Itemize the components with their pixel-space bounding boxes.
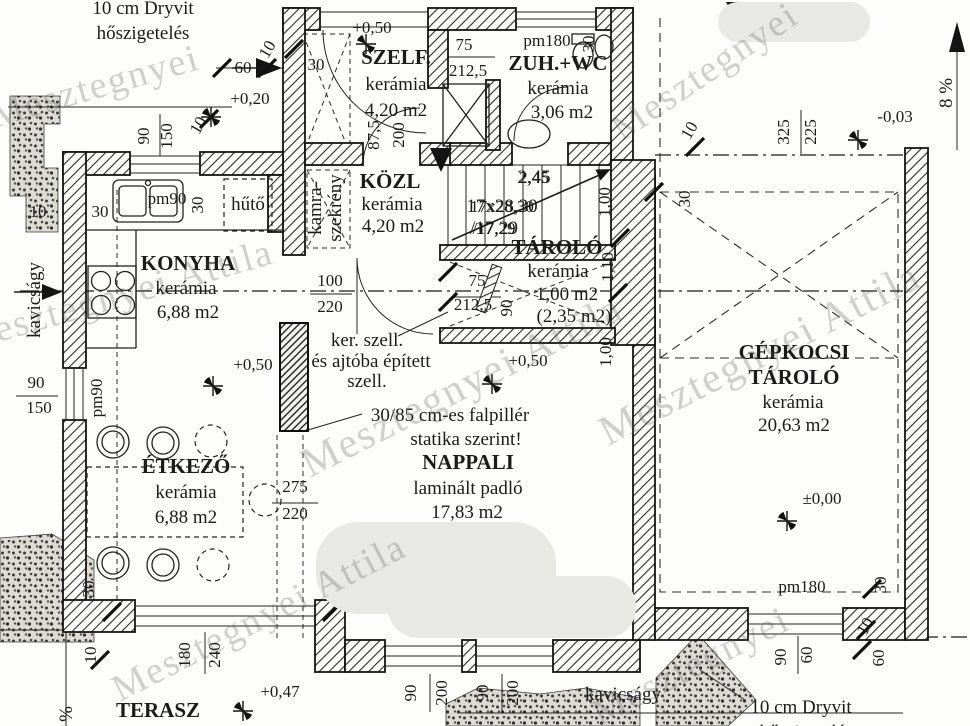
room-area-konyha: 6,88 m2	[157, 302, 219, 323]
room-area-etkezo: 6,88 m2	[155, 507, 217, 528]
room-area-szelf: 4,20 m2	[365, 100, 427, 121]
dimension-label: 212,5	[454, 295, 492, 314]
pantry-label-1: kamra-	[305, 181, 326, 235]
dimension-label: 60	[235, 58, 252, 77]
dimension-label: 60	[869, 650, 888, 667]
dimension-label: 90	[473, 685, 492, 702]
dimension-label: -0,03	[877, 107, 912, 126]
vent-note-2: és ajtóba épített	[311, 351, 431, 372]
vent-note-3: szell.	[347, 371, 387, 392]
shower-tray-icon	[443, 84, 489, 146]
insulation-note-bottom-1: 10 cm Dryvit	[750, 697, 852, 718]
room-area-kozl: 4,20 m2	[362, 216, 424, 237]
dimension-label: 90	[401, 685, 420, 702]
dimension-label: pm180	[778, 577, 825, 596]
dimension-label: +0,47	[260, 682, 300, 701]
dimension-label: 90	[771, 649, 790, 666]
dimension-label: pm90	[87, 379, 106, 418]
dimension-label: 220	[282, 504, 308, 523]
room-material-garage: kerámia	[762, 392, 824, 413]
dimension-label: 150	[26, 398, 52, 417]
room-name-tarolo: TÁROLÓ	[511, 235, 602, 259]
level-marker-icon	[233, 701, 253, 721]
dimension-label: 30	[188, 197, 207, 214]
room-name-etkezo: ÉTKEZŐ	[142, 454, 231, 478]
level-marker-icon	[203, 376, 223, 396]
dimension-label: /17,29	[473, 219, 516, 238]
dimension-label: 212,5	[449, 61, 487, 80]
dimension-label: +0,20	[230, 89, 269, 108]
room-name-nappali: NAPPALI	[422, 450, 514, 474]
dimension-label: 75	[469, 271, 486, 290]
room-name-zuhwc: ZUH.+WC	[509, 51, 608, 75]
dimension-label: +0,50	[233, 355, 272, 374]
szelf-closet	[303, 34, 350, 154]
room-material-nappali: laminált padló	[413, 478, 522, 499]
level-marker-icon	[848, 130, 868, 150]
dimension-label: 30	[871, 577, 890, 594]
dimension-label: 90	[497, 300, 516, 317]
fridge-label: hűtő	[231, 194, 265, 215]
watermark-text: Mesztegnyei Attila	[105, 525, 413, 710]
dimension-label: 10	[677, 118, 702, 142]
dimension-label: 200	[432, 680, 451, 706]
room-name-kozl: KÖZL	[360, 169, 421, 193]
vent-note-1: ker. szell.	[331, 330, 403, 351]
dimension-label: 30	[308, 55, 325, 74]
room-material-kozl: kerámia	[361, 194, 423, 215]
dimension-label: 60	[797, 647, 816, 664]
slope-label-terrace: %	[56, 706, 77, 722]
dimension-label: 75	[456, 35, 473, 54]
dimension-label: 275	[282, 477, 308, 496]
dining-chairs	[97, 425, 281, 581]
room-area-garage: 20,63 m2	[758, 415, 830, 436]
kitchen-window	[130, 156, 200, 173]
dimension-label: 225	[801, 119, 820, 145]
dimension-label: 10	[255, 37, 280, 61]
dimension-label: 87,5	[364, 120, 383, 150]
insulation-note-top-1: 10 cm Dryvit	[92, 0, 194, 19]
watermark-text: Mesztegnyei Attila	[0, 231, 278, 361]
dimension-label: 10	[30, 202, 47, 221]
watermark-text: Mesztegnyei	[0, 37, 204, 137]
room-material-zuhwc: kerámia	[527, 78, 589, 99]
dimension-label: 100	[317, 271, 343, 290]
dimension-label: 1,00	[595, 187, 614, 217]
window-pm180-top	[516, 12, 596, 27]
dimension-label: 200	[503, 680, 522, 706]
dimension-label: 10	[81, 647, 100, 664]
dimension-label: 1,10	[598, 252, 617, 282]
dimension-label: pm90	[148, 189, 187, 208]
dimension-label: ±0,00	[802, 489, 841, 508]
room-material-tarolo: kerámia	[527, 261, 589, 282]
dimension-label: 17x28,30	[470, 197, 534, 216]
dimension-label: 90	[134, 128, 153, 145]
dimension-label: pm180	[523, 31, 570, 50]
dimension-label: 325	[774, 119, 793, 145]
room-area-nappali: 17,83 m2	[431, 502, 503, 523]
dimension-label: 30	[92, 202, 109, 221]
room-name-szelf: SZELF.	[361, 45, 431, 69]
dimension-label: 90	[28, 373, 45, 392]
dimension-label: 200	[389, 122, 408, 148]
dimension-label: 30	[579, 36, 598, 53]
floor-plan-drawing: SZELF. kerámia 4,20 m2 ZUH.+WC kerámia 3…	[0, 0, 970, 726]
dimension-label: +0,50	[352, 18, 391, 37]
dimension-label: 220	[317, 297, 343, 316]
room-material-etkezo: kerámia	[155, 482, 217, 503]
dimension-label: 2,45	[519, 168, 549, 187]
pantry-label-2: szekrény	[325, 174, 346, 242]
dimension-label: 30	[675, 191, 694, 208]
room-area-zuhwc: 3,06 m2	[531, 102, 593, 123]
dimension-label: 150	[157, 123, 176, 149]
pillar-note-2: statika szerint!	[410, 429, 521, 450]
structural-pillar	[280, 323, 308, 431]
level-marker-icon	[777, 511, 797, 531]
slope-label: 8 %	[936, 78, 957, 108]
insulation-note-bottom-2: hőszigetelés	[760, 722, 853, 726]
room-material-szelf: kerámia	[365, 74, 427, 95]
dimension-label: 30	[79, 581, 98, 598]
left-window-pm90	[66, 368, 83, 420]
